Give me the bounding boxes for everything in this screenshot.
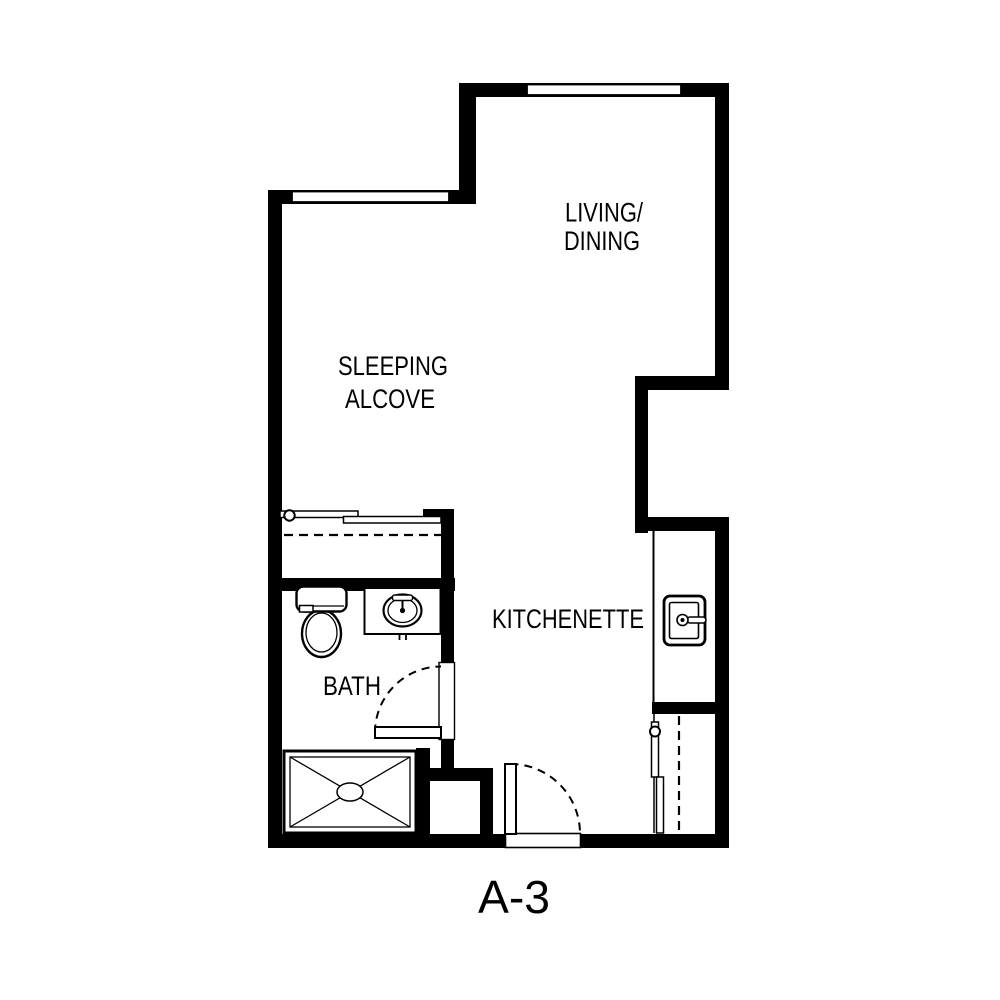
vanity-faucet-bar xyxy=(393,595,413,601)
wall-kitchenette-bottom xyxy=(652,702,729,714)
window-sleeping-alcove xyxy=(292,192,449,203)
wall-bottom-exterior xyxy=(268,834,729,848)
entry-closet-sliding-panel-2 xyxy=(657,777,664,833)
entry-door-leaf xyxy=(505,764,516,834)
toilet-flush-handle xyxy=(300,606,314,613)
vanity-drain-dot xyxy=(400,608,405,613)
wall-jog-horizontal xyxy=(635,376,729,390)
wall-jog-vertical xyxy=(635,376,648,533)
entry-closet-door-handle xyxy=(650,727,660,737)
sleeping-alcove-label-line1: SLEEPING xyxy=(338,351,448,381)
kitchenette-fixtures xyxy=(654,531,707,702)
kitchen-faucet-lever xyxy=(687,617,706,623)
floor-plan-canvas: LIVING/ DINING SLEEPING ALCOVE KITCHENET… xyxy=(0,0,1000,1000)
toilet-bowl-outer xyxy=(302,610,341,657)
wall-right-upper xyxy=(715,83,729,390)
wall-left-exterior xyxy=(268,190,282,848)
living-dining-label-line1: LIVING/ xyxy=(565,198,643,228)
living-dining-label-line2: DINING xyxy=(564,226,640,256)
closet-door-handle xyxy=(284,510,294,520)
wall-step-vertical xyxy=(459,83,476,204)
bath-label: BATH xyxy=(323,671,381,701)
entry-door-swing-arc xyxy=(511,764,581,834)
alcove-closet xyxy=(280,510,441,535)
wall-nook-east xyxy=(480,768,493,848)
wall-right-lower xyxy=(715,517,729,848)
closet-sliding-panel-2 xyxy=(344,517,442,524)
sleeping-alcove-label-line2: ALCOVE xyxy=(345,384,435,414)
shower-drain xyxy=(337,783,363,801)
entry-closet xyxy=(650,714,679,833)
window-living xyxy=(527,85,681,96)
kitchen-sink-drain-dot xyxy=(681,618,685,622)
windows xyxy=(292,85,681,203)
unit-name-label: A-3 xyxy=(478,871,550,923)
bath-door-leaf xyxy=(375,727,441,738)
wall-kitchenette-top xyxy=(635,517,729,531)
bath-fixtures xyxy=(284,587,441,834)
floor-plan-drawing: LIVING/ DINING SLEEPING ALCOVE KITCHENET… xyxy=(0,0,1000,1000)
bath-door-swing-arc xyxy=(375,667,441,733)
entry-door-threshold xyxy=(506,834,581,848)
kitchenette-label: KITCHENETTE xyxy=(492,604,644,634)
wall-shower-east xyxy=(416,748,430,848)
